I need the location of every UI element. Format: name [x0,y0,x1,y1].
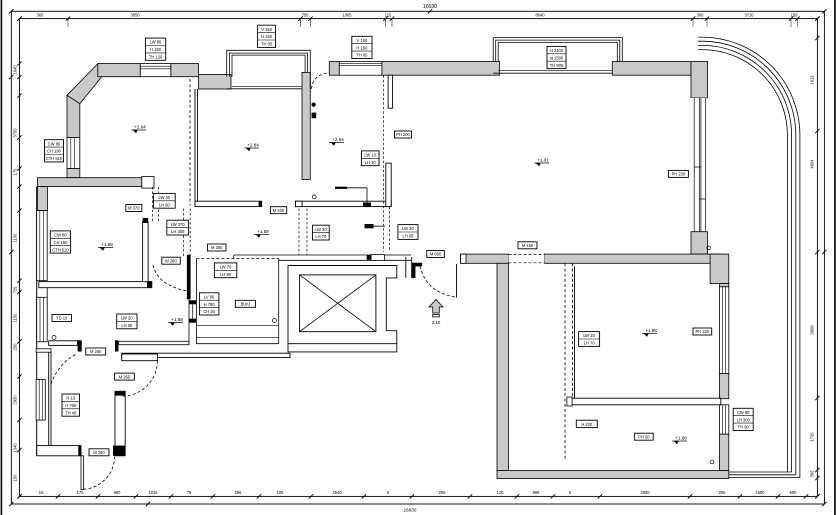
svg-text:16030: 16030 [423,4,437,10]
svg-text:LH 60: LH 60 [159,202,171,207]
svg-text:LW 370: LW 370 [171,222,186,227]
svg-text:H 220: H 220 [581,422,593,427]
svg-text:600: 600 [790,490,798,495]
svg-text:LH 05: LH 05 [402,234,414,239]
svg-text:M 260: M 260 [90,349,102,354]
svg-text:LV 80: LV 80 [204,294,215,299]
svg-text:120: 120 [497,490,505,495]
svg-text:TH 90: TH 90 [738,425,750,430]
svg-text:CH 190: CH 190 [47,149,62,154]
svg-text:LW 85: LW 85 [150,40,162,45]
svg-text:3808: 3808 [810,325,815,335]
svg-text:st 1500: st 1500 [550,55,564,60]
svg-text:PH 230: PH 230 [672,172,686,177]
svg-text:CH 20: CH 20 [203,309,215,314]
svg-text:LH 70: LH 70 [584,341,596,346]
svg-text:TD 10: TD 10 [56,316,68,321]
svg-text:LW 20: LW 20 [583,333,595,338]
svg-text:H 10: H 10 [66,396,75,401]
svg-text:LW 20: LW 20 [402,226,414,231]
svg-text:106: 106 [277,490,285,495]
svg-text:M 250: M 250 [211,245,223,250]
svg-text:M 150: M 150 [522,243,534,248]
svg-text:+1.88: +1.88 [101,242,113,247]
svg-text:H 2400: H 2400 [550,48,564,53]
svg-text:V 150: V 150 [261,27,272,32]
svg-text:365: 365 [37,13,45,18]
svg-text:296: 296 [235,490,243,495]
svg-text:M 260: M 260 [119,374,131,379]
svg-text:4804: 4804 [810,159,815,169]
svg-text:LH 300: LH 300 [171,229,185,234]
svg-text:150: 150 [791,13,799,18]
svg-text:H 780: H 780 [204,302,216,307]
svg-text:CH 150: CH 150 [54,240,69,245]
svg-text:PH 200: PH 200 [396,132,410,137]
svg-text:750: 750 [302,13,310,18]
svg-text:1150: 1150 [12,313,17,323]
svg-text:150: 150 [12,474,17,482]
svg-text:1340: 1340 [12,443,17,453]
svg-text:175: 175 [12,168,17,176]
svg-text:TH 05: TH 05 [261,42,273,47]
svg-text:LW 70: LW 70 [220,265,232,270]
svg-text:+1.58: +1.58 [171,317,183,322]
svg-text:CW 80: CW 80 [54,233,67,238]
svg-text:H 150: H 150 [261,34,273,39]
svg-text:LH 20: LH 20 [365,160,377,165]
svg-text:75: 75 [187,490,192,495]
svg-text:+1.58: +1.58 [257,229,269,234]
svg-text:M 280: M 280 [165,258,177,263]
svg-text:966: 966 [533,490,541,495]
svg-text:1005: 1005 [342,13,352,18]
svg-text:TH 40: TH 40 [65,410,77,415]
svg-text:3700: 3700 [12,128,17,138]
svg-text:1680: 1680 [755,490,765,495]
svg-text:170: 170 [77,490,85,495]
svg-text:CW 80: CW 80 [737,410,750,415]
svg-text:3050: 3050 [130,13,140,18]
svg-text:LW 20: LW 20 [121,316,133,321]
svg-text:BUKI: BUKI [241,302,251,307]
svg-text:3.10: 3.10 [432,320,441,325]
svg-text:M 050: M 050 [430,252,442,257]
svg-text:115: 115 [385,13,392,18]
svg-text:+2.64: +2.64 [332,137,344,142]
svg-text:3710: 3710 [744,13,754,18]
svg-text:205: 205 [719,490,727,495]
svg-text:CTH 510: CTH 510 [46,156,63,161]
svg-text:H 150: H 150 [356,45,368,50]
svg-text:TH 05: TH 05 [356,53,368,58]
svg-text:LH 70: LH 70 [315,234,327,239]
svg-text:PH 220: PH 220 [696,329,710,334]
svg-text:+1.68: +1.68 [645,328,657,333]
svg-text:725: 725 [12,286,17,294]
svg-text:206: 206 [439,490,447,495]
svg-text:2640: 2640 [332,490,342,495]
svg-text:LH 80: LH 80 [220,272,232,277]
svg-text:+1.01: +1.01 [537,158,549,163]
svg-text:LW 10: LW 10 [364,153,376,158]
svg-text:V 150: V 150 [357,38,368,43]
svg-text:TH 120: TH 120 [149,55,163,60]
svg-text:8640: 8640 [535,13,545,18]
svg-text:+2.64: +2.64 [134,125,146,130]
svg-text:CW 80: CW 80 [48,141,61,146]
svg-text:M 260: M 260 [93,450,105,455]
svg-text:960: 960 [114,490,122,495]
svg-text:16: 16 [39,490,44,495]
svg-text:CTH 510: CTH 510 [52,247,69,252]
svg-text:M 370: M 370 [128,206,140,211]
svg-text:1735: 1735 [810,432,815,442]
svg-text:360: 360 [697,13,705,18]
svg-text:LH 300: LH 300 [737,417,751,422]
svg-text:250: 250 [12,343,17,351]
svg-text:LW 20: LW 20 [315,227,327,232]
svg-text:16030: 16030 [404,508,417,513]
svg-text:LW 40: LW 40 [159,195,171,200]
svg-text:PH 50: PH 50 [638,434,650,439]
svg-text:H 150: H 150 [150,47,162,52]
svg-text:1100: 1100 [12,233,17,243]
svg-text:1640: 1640 [12,65,17,75]
svg-text:+1.68: +1.68 [675,436,687,441]
svg-text:2900: 2900 [640,490,650,495]
svg-text:LH 05: LH 05 [121,323,133,328]
svg-text:TH 900: TH 900 [550,63,564,68]
svg-text:1015: 1015 [148,490,158,495]
svg-text:M 330: M 330 [273,208,285,213]
svg-text:+2.64: +2.64 [247,143,259,148]
svg-text:H 765: H 765 [65,403,77,408]
svg-text:1613: 1613 [810,75,815,85]
svg-text:2950: 2950 [12,395,17,405]
svg-text:350: 350 [810,470,815,478]
